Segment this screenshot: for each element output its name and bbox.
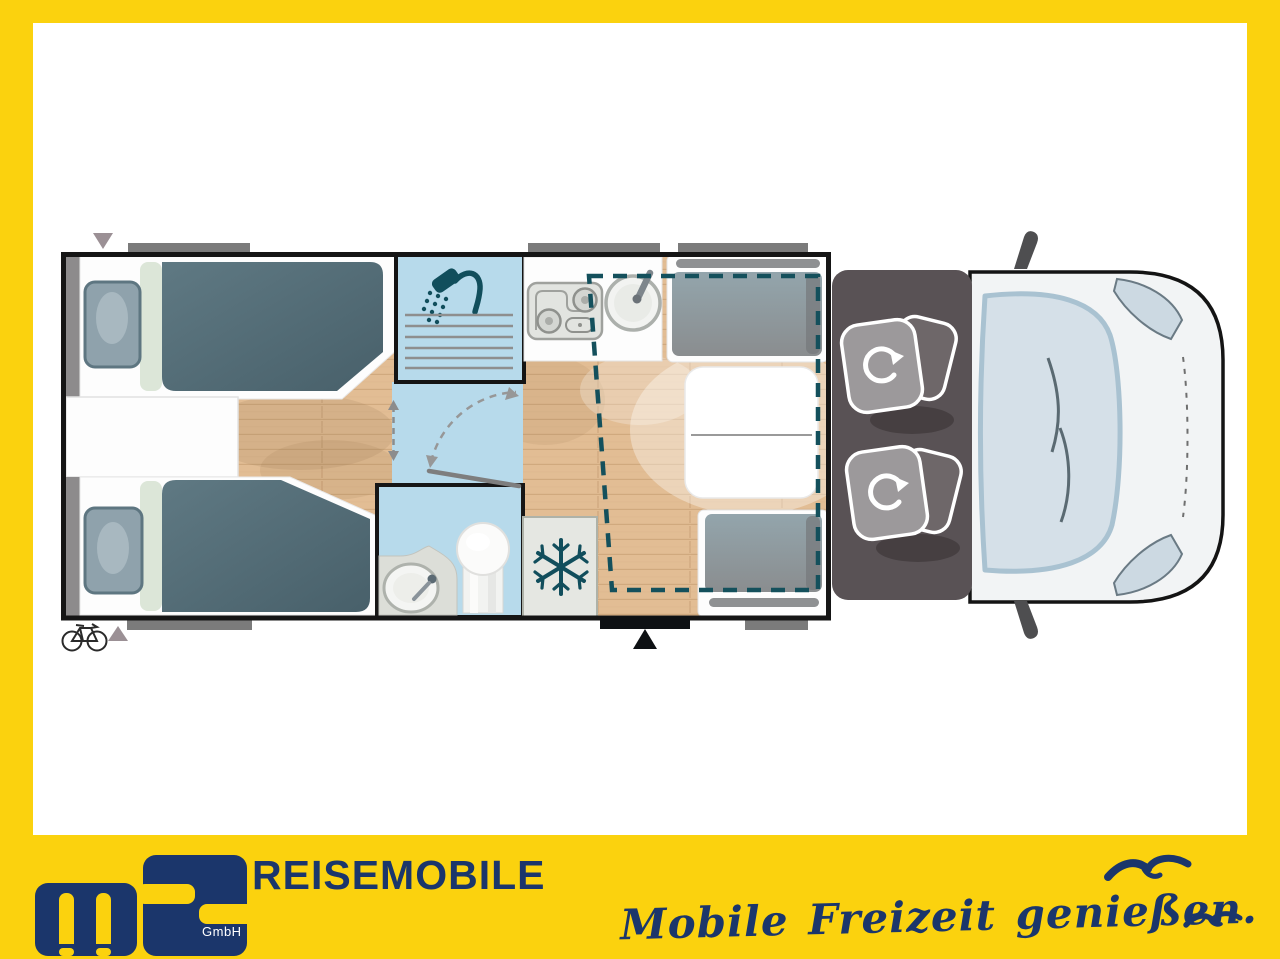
seagull-icons (1095, 853, 1250, 938)
dinette-bench-front (667, 255, 828, 362)
marker-triangle-icon (108, 626, 128, 641)
wordmark: REISEMOBILE (252, 852, 545, 899)
logo-letter-s (137, 855, 255, 956)
swivel-seat (844, 444, 964, 541)
brand-banner: GmbH REISEMOBILE Mobile Freizeit genieße… (0, 835, 1280, 959)
washbasin (384, 564, 438, 612)
marker-triangle-icon (93, 233, 113, 249)
seagull-icon (1108, 858, 1188, 877)
logo-letter-m (35, 883, 137, 956)
entry-door-arrow-icon (633, 629, 657, 649)
dinette-table (685, 367, 818, 498)
kitchen-sink (606, 273, 660, 330)
toilet (457, 523, 509, 613)
driver-cab (832, 270, 972, 600)
motorhome-floorplan (33, 23, 1247, 835)
pillow (85, 282, 140, 367)
flyer-frame: GmbH REISEMOBILE Mobile Freizeit genieße… (0, 0, 1280, 959)
mirror-icon (1014, 231, 1038, 269)
mirror-icon (1014, 601, 1038, 639)
refrigerator (523, 517, 597, 618)
bed-rear-left-top (65, 255, 400, 399)
seagull-icon (1186, 914, 1240, 925)
entry-door (600, 616, 690, 649)
vehicle-front (970, 231, 1223, 639)
dinette-bench-rear (698, 510, 828, 617)
floorplan-canvas (33, 23, 1247, 835)
bed-rear-left-bottom (65, 477, 378, 616)
shower-cubicle (392, 255, 524, 488)
logo-ms (30, 849, 260, 959)
windshield (981, 294, 1121, 571)
company-suffix: GmbH (202, 924, 242, 939)
bicycle-icon (63, 624, 107, 651)
pillow (85, 508, 142, 593)
between-beds-cabinet (66, 397, 238, 477)
washroom (377, 485, 523, 617)
